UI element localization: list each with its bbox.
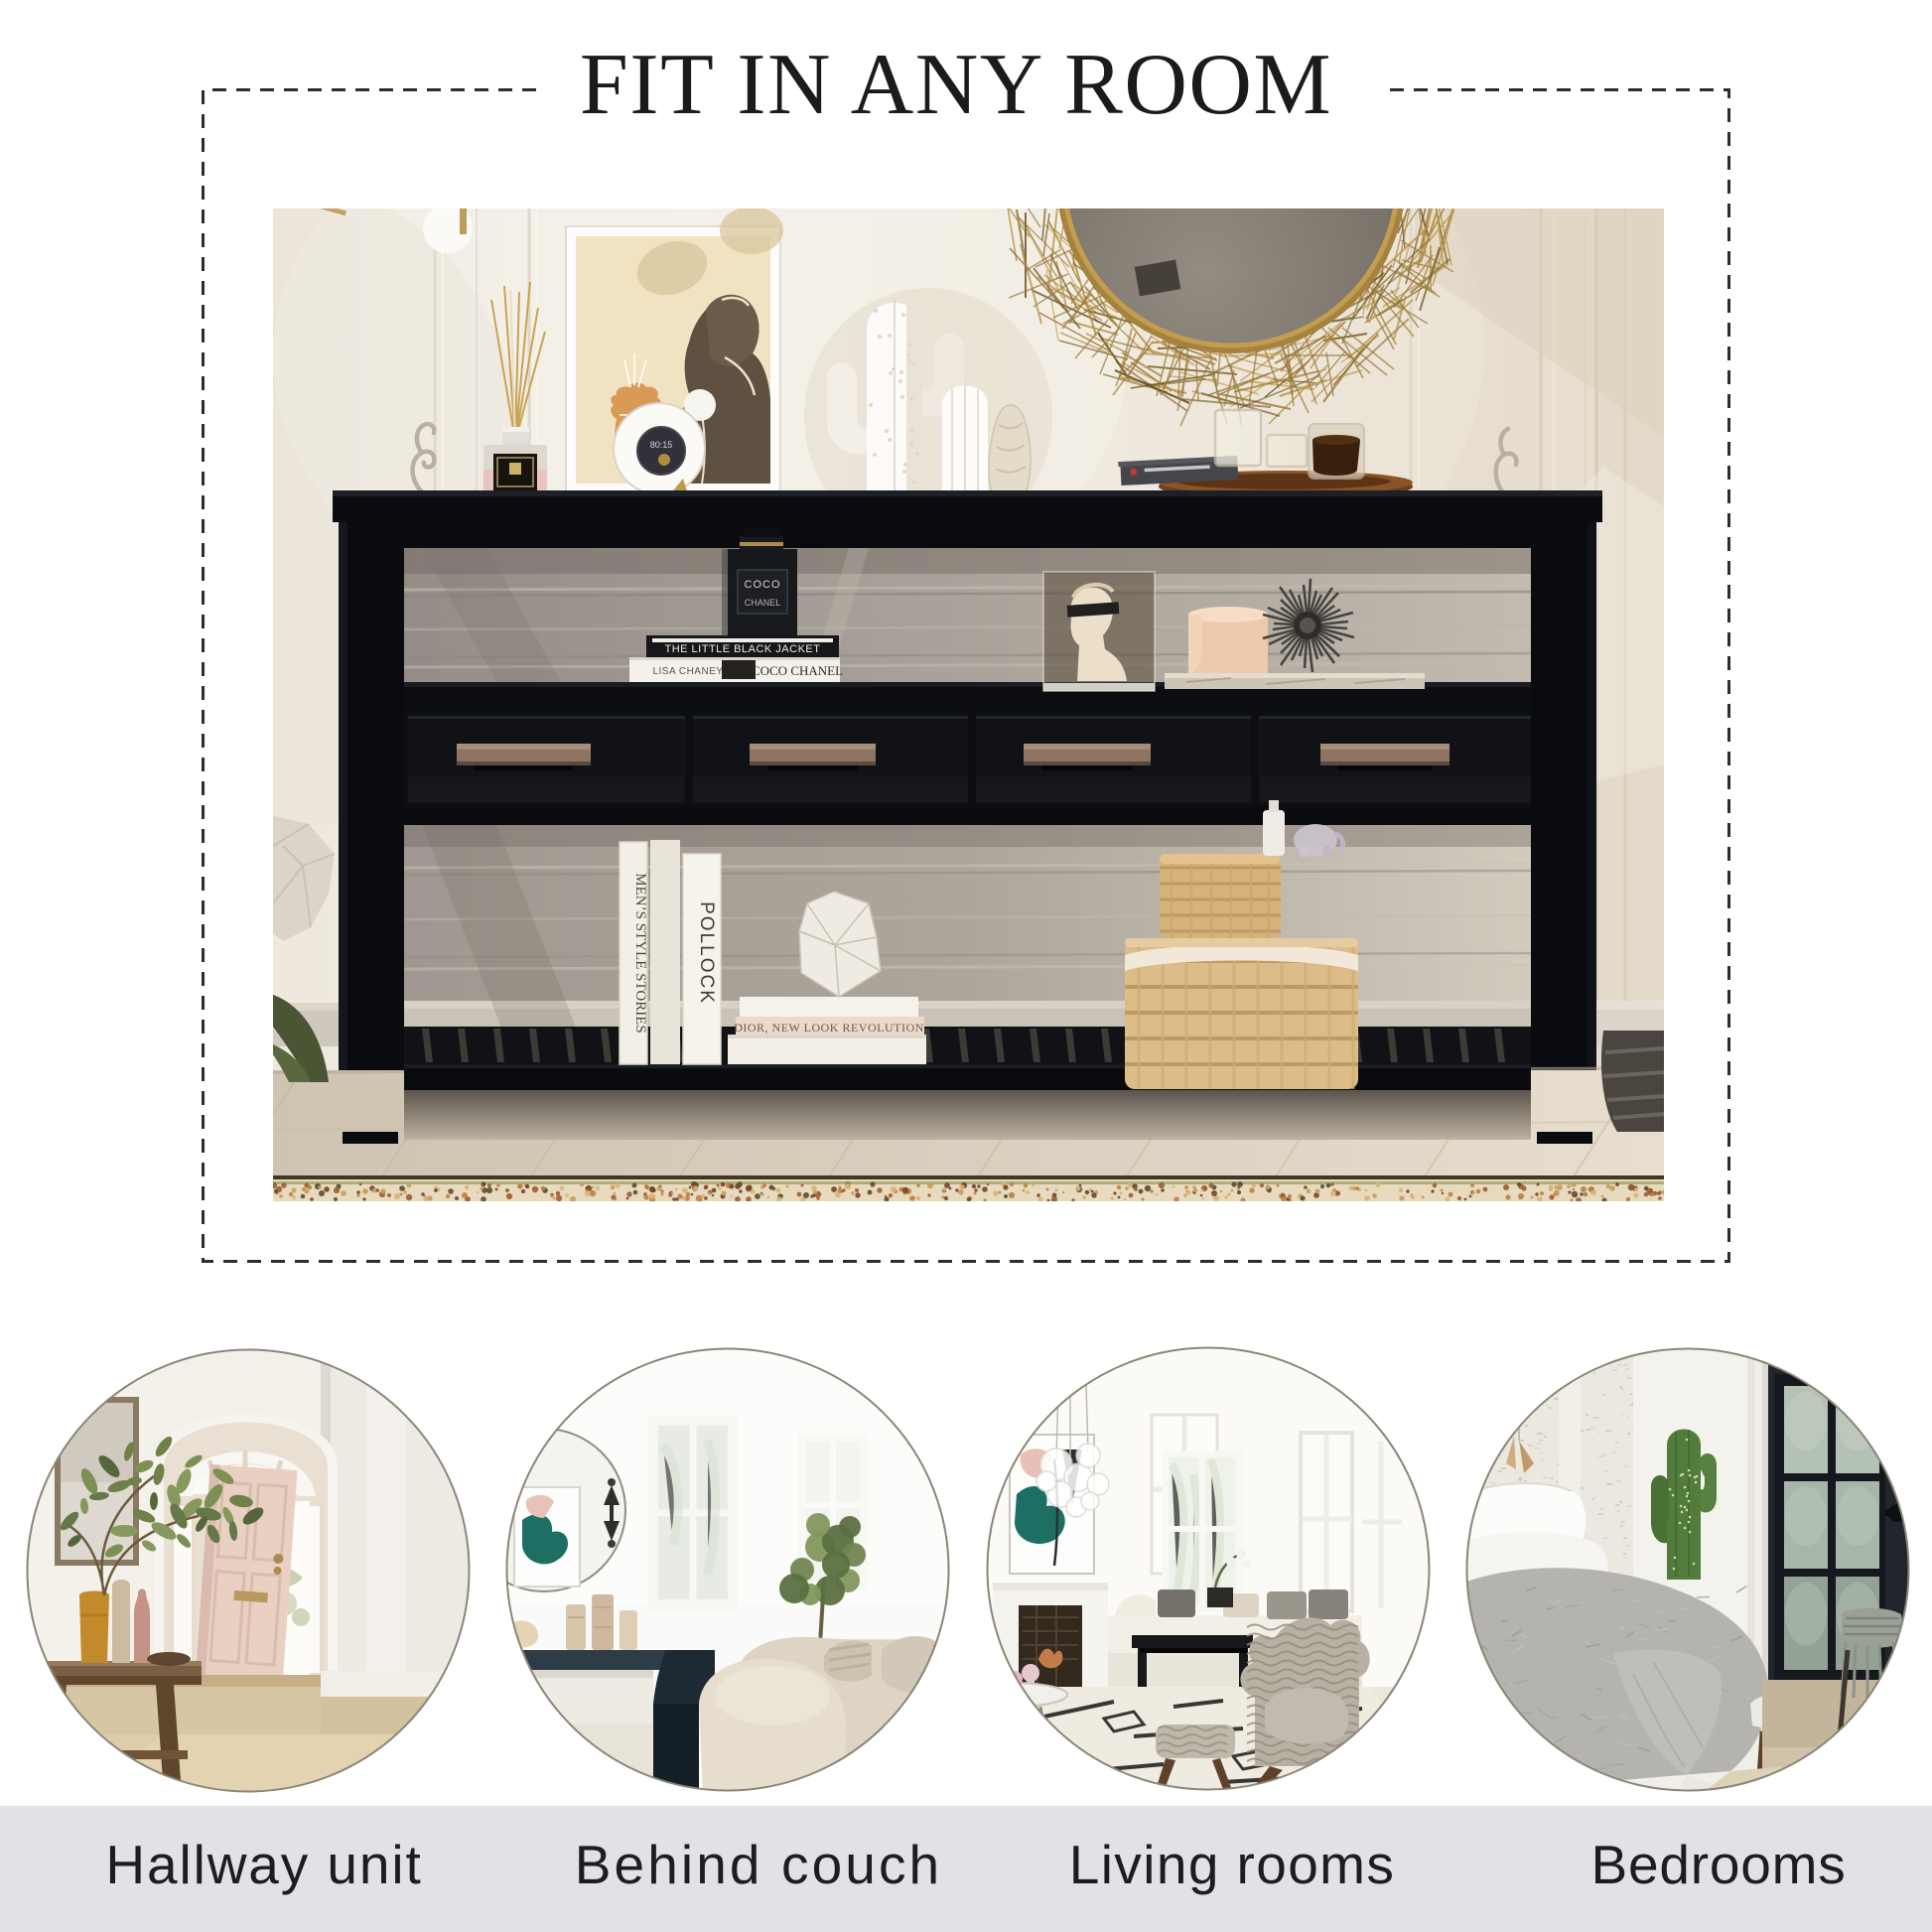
svg-text:LISA CHANEY: LISA CHANEY	[652, 666, 723, 677]
svg-text:POLLOCK: POLLOCK	[696, 901, 717, 1005]
svg-text:CHANEL: CHANEL	[745, 598, 781, 608]
svg-text:THE LITTLE BLACK JACKET: THE LITTLE BLACK JACKET	[665, 643, 821, 655]
svg-text:MEN’S STYLE STORIES: MEN’S STYLE STORIES	[632, 873, 648, 1033]
svg-text:DIOR, NEW LOOK REVOLUTION: DIOR, NEW LOOK REVOLUTION	[734, 1021, 924, 1035]
svg-text:COCO CHANEL: COCO CHANEL	[752, 663, 843, 678]
svg-text:80:15: 80:15	[650, 440, 673, 450]
svg-text:COCO: COCO	[745, 579, 781, 591]
